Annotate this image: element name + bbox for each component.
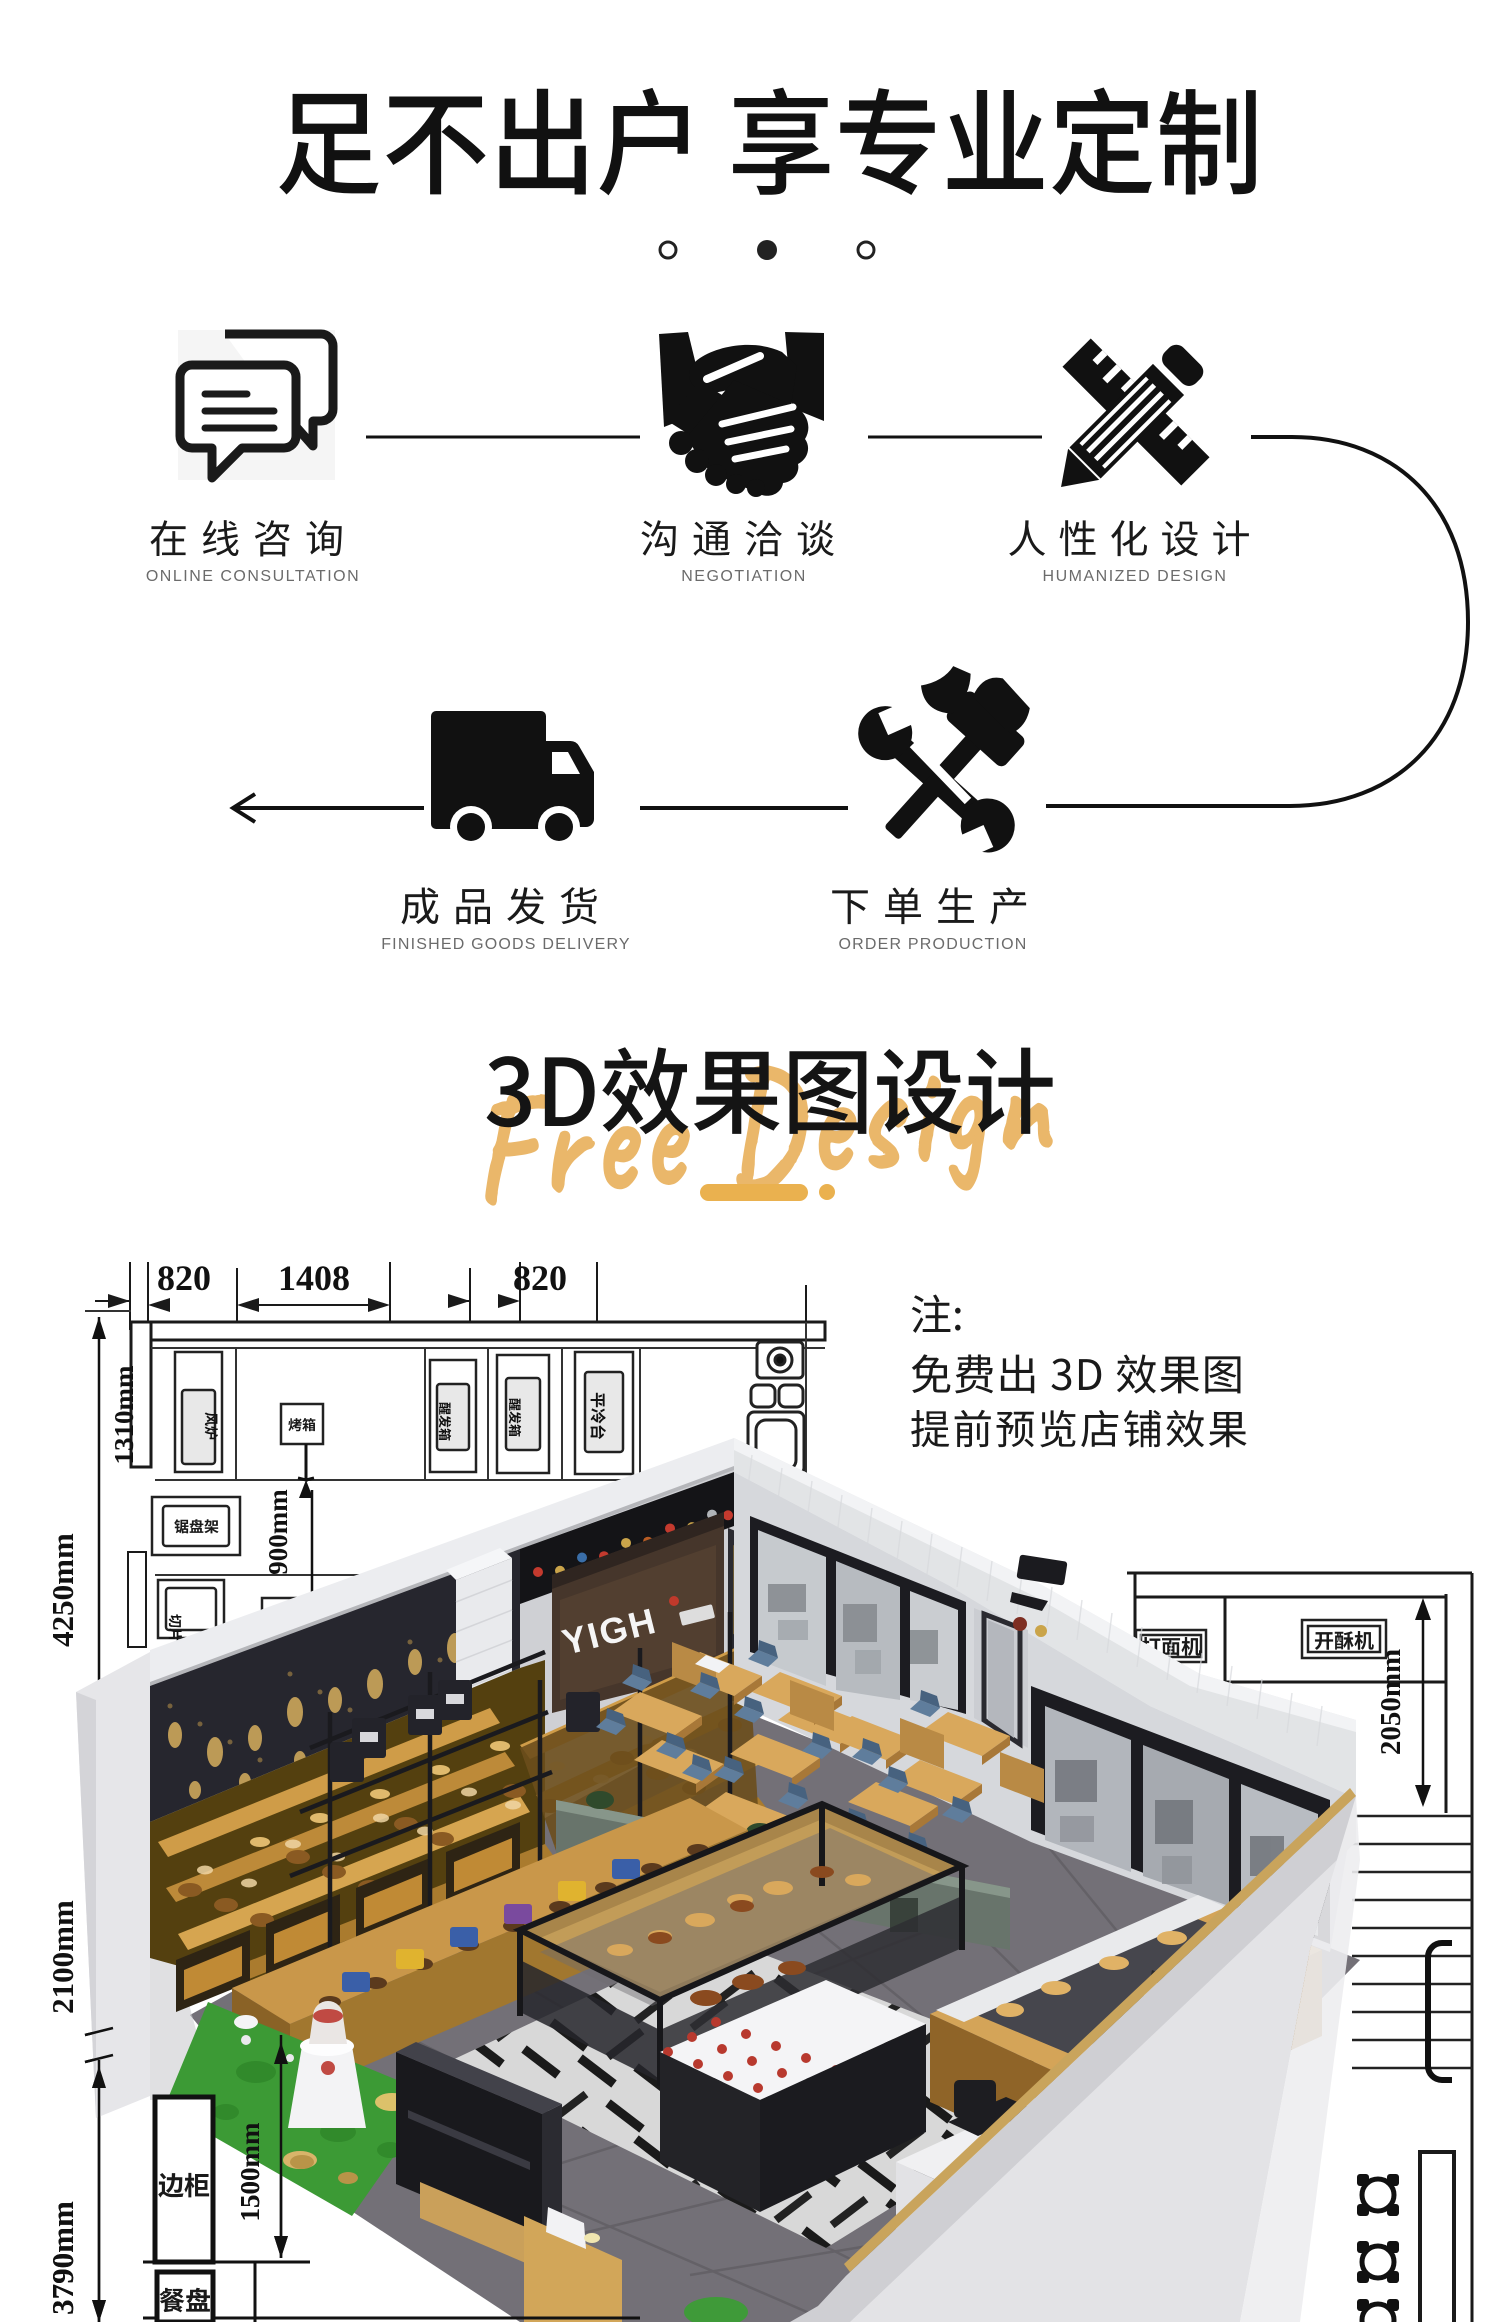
svg-text:2050mm: 2050mm [1375,1649,1407,1755]
svg-text:ORDER PRODUCTION: ORDER PRODUCTION [839,936,1028,953]
svg-text:HUMANIZED DESIGN: HUMANIZED DESIGN [1043,568,1228,585]
svg-text:900mm: 900mm [263,1489,293,1575]
svg-text:1500mm: 1500mm [235,2122,265,2221]
svg-text:820: 820 [157,1258,211,1298]
svg-text:820: 820 [513,1258,567,1298]
svg-text:2100mm: 2100mm [45,1900,80,2014]
svg-text:ONLINE CONSULTATION: ONLINE CONSULTATION [146,568,360,585]
svg-text:1310mm: 1310mm [109,1365,139,1464]
svg-text:NEGOTIATION: NEGOTIATION [681,568,807,585]
svg-text:1408: 1408 [278,1258,350,1298]
svg-text:3790mm: 3790mm [45,2201,80,2315]
svg-text:FINISHED GOODS DELIVERY: FINISHED GOODS DELIVERY [381,936,631,953]
svg-text:4250mm: 4250mm [45,1533,80,1647]
